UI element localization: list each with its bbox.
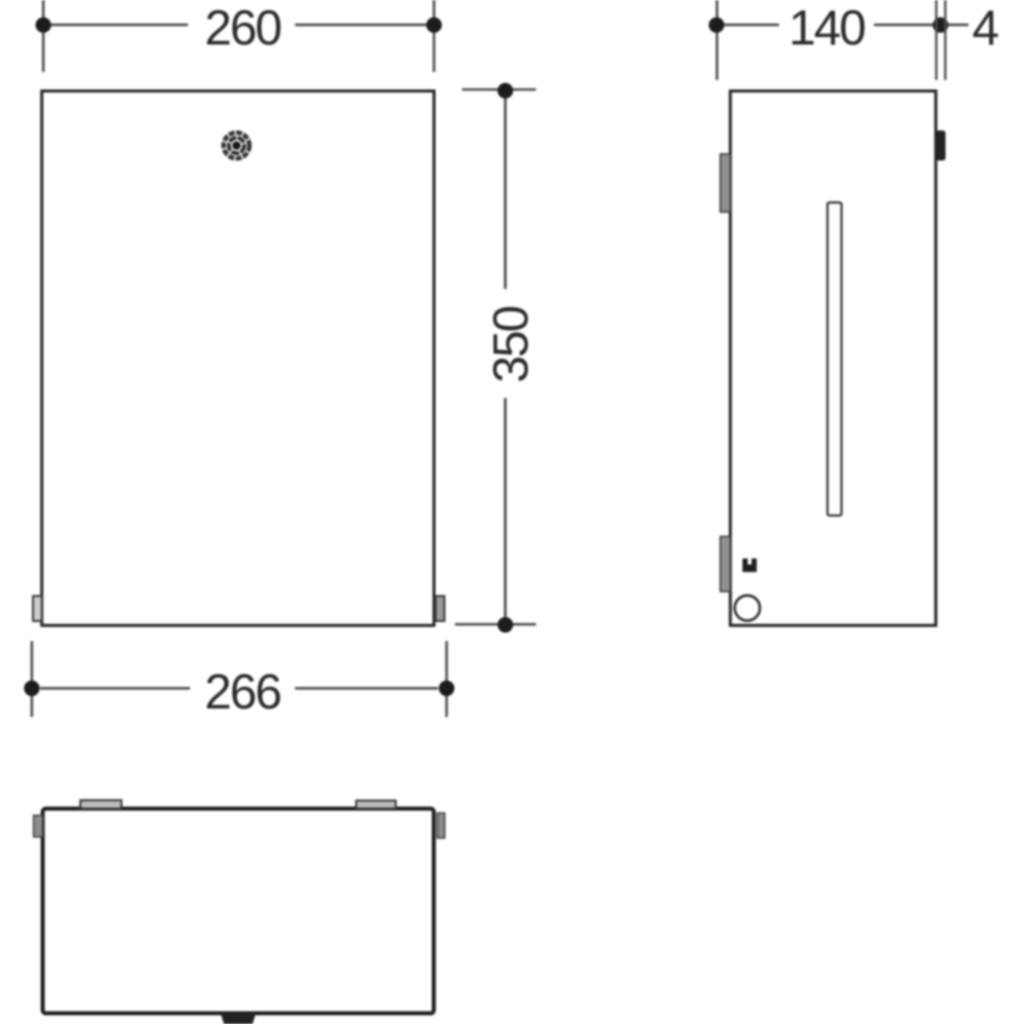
svg-text:266: 266 [205,666,282,720]
svg-text:260: 260 [205,2,282,56]
svg-text:140: 140 [789,2,866,56]
svg-text:4: 4 [972,2,999,56]
svg-text:350: 350 [485,306,539,383]
